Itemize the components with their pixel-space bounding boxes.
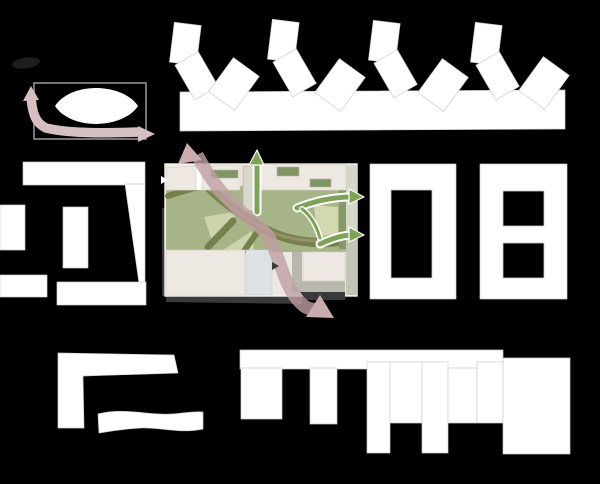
plan-building xyxy=(303,252,345,281)
comb-tooth xyxy=(241,368,282,419)
courtyard-building xyxy=(480,164,567,299)
building-block-bent xyxy=(267,19,316,97)
diagram-canvas xyxy=(0,0,600,484)
building-shadow xyxy=(300,292,345,300)
plan-building xyxy=(166,250,245,295)
building-block xyxy=(63,207,88,268)
wavy-building xyxy=(98,411,203,433)
roof-garden xyxy=(310,179,331,187)
edge-strip xyxy=(346,235,357,295)
context-right-courtyard-blocks xyxy=(370,164,567,299)
courtyard-void xyxy=(391,190,432,278)
building-block-bent xyxy=(470,22,519,100)
building-block xyxy=(0,275,47,297)
context-left-blocks xyxy=(0,162,146,305)
plan-building xyxy=(166,166,196,190)
site-diagram xyxy=(0,0,600,484)
lens-shape xyxy=(55,88,138,124)
shadow-blob xyxy=(11,56,40,71)
context-bottom-comb xyxy=(240,350,570,454)
context-bottom-left-blocks xyxy=(58,353,203,433)
concept-oval-figure xyxy=(11,56,155,142)
courtyard-void xyxy=(503,191,544,226)
plan-building xyxy=(256,164,346,190)
building-block-bent xyxy=(368,20,417,98)
courtyard-void xyxy=(503,243,544,278)
green-arrowhead-up-icon xyxy=(249,150,264,165)
comb-courtyard xyxy=(390,362,422,423)
comb-tooth xyxy=(310,368,337,424)
comb-tooth xyxy=(422,362,448,453)
roof-garden xyxy=(277,167,299,176)
comb-tooth xyxy=(367,362,390,453)
context-top-row xyxy=(169,19,569,131)
comb-courtyard xyxy=(448,368,477,423)
site-plan xyxy=(161,143,364,318)
building-block xyxy=(0,205,25,250)
building-block xyxy=(57,282,146,305)
building-wedge xyxy=(125,184,145,283)
arrowhead-up-icon xyxy=(23,86,39,101)
plaza xyxy=(246,250,272,295)
building-block xyxy=(23,162,145,185)
building-block xyxy=(503,358,570,454)
comb-tooth xyxy=(477,362,503,423)
